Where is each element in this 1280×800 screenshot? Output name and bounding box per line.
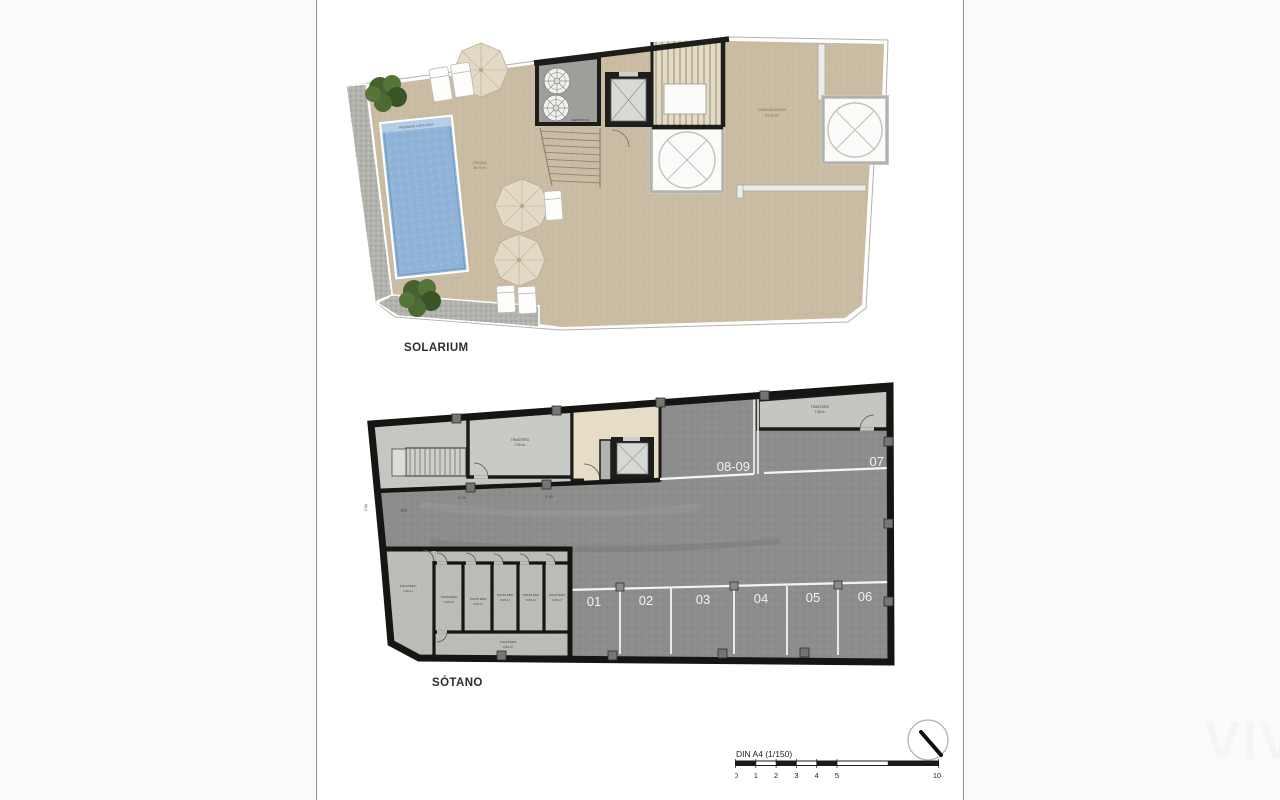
skylight-shaft-right	[823, 97, 887, 163]
svg-text:ZONA ACCESOS: ZONA ACCESOS	[758, 108, 787, 112]
svg-text:TRASTERO: TRASTERO	[497, 593, 514, 597]
parking-spot-07: 07	[870, 454, 884, 469]
elevator-solarium	[605, 72, 652, 127]
svg-text:60.00 m²: 60.00 m²	[474, 166, 487, 170]
elevator-basement	[611, 437, 654, 480]
machine-room-label: DEPÓSITOS	[571, 117, 588, 122]
svg-text:3.39 m²: 3.39 m²	[473, 602, 483, 606]
solarium-floorplan: DEPÓSITOS	[340, 28, 900, 358]
scale-ticks: 0 1 2 3 4 5 10	[735, 771, 941, 780]
svg-text:7.50 m²: 7.50 m²	[515, 443, 526, 447]
svg-text:PISCINA: PISCINA	[473, 161, 487, 165]
svg-text:TRASTERO: TRASTERO	[811, 405, 830, 409]
parking-spot-06: 06	[858, 589, 872, 604]
pool-area-label: PISCINA 60.00 m²	[473, 161, 487, 170]
parasol-icon	[495, 179, 549, 233]
svg-text:3.49 m²: 3.49 m²	[444, 600, 454, 604]
svg-text:TRASTERO: TRASTERO	[511, 438, 530, 442]
parking-spot-04: 04	[754, 591, 768, 606]
swimming-pool: PISCINA DE 1.20 A 2.20 m	[380, 116, 468, 279]
svg-text:3.08 m²: 3.08 m²	[552, 598, 562, 602]
parking-spot-03: 03	[696, 592, 710, 607]
dim-label: 4.90	[545, 494, 554, 499]
svg-text:TRASTERO: TRASTERO	[441, 595, 458, 599]
svg-text:81.00 m²: 81.00 m²	[765, 114, 779, 118]
svg-text:4.50 m²: 4.50 m²	[503, 645, 513, 649]
parking-spot-02: 02	[639, 593, 653, 608]
svg-text:1: 1	[754, 771, 758, 780]
skylight-shaft-left	[651, 128, 723, 192]
scale-title: DIN A4 (1/150)	[736, 749, 792, 759]
drawing-sheet: DEPÓSITOS	[0, 0, 1280, 800]
water-tank-icon	[544, 68, 570, 94]
svg-text:7.36 m²: 7.36 m²	[815, 410, 826, 414]
svg-text:TRASTERO: TRASTERO	[549, 593, 566, 597]
svg-text:2: 2	[774, 771, 778, 780]
sotano-floorplan: TRASTERO 7.50 m² 4.20 4.90 5% 3.00	[360, 375, 905, 680]
svg-text:TRASTERO: TRASTERO	[500, 640, 517, 644]
parking-spot-0809: 08-09	[717, 459, 750, 474]
dim-label: 4.20	[458, 495, 467, 500]
north-orientation-icon	[898, 710, 960, 772]
solarium-title: SOLARIUM	[404, 342, 469, 354]
svg-text:3: 3	[794, 771, 798, 780]
storeroom-750: TRASTERO 7.50 m²	[468, 411, 572, 477]
stairs-basement	[392, 446, 466, 478]
parking-spot-01: 01	[587, 594, 601, 609]
svg-text:5: 5	[835, 771, 839, 780]
svg-text:10: 10	[933, 771, 941, 780]
sheet-right-margin	[963, 0, 1280, 800]
svg-text:7.30 m²: 7.30 m²	[403, 589, 413, 593]
water-tank-icon	[543, 95, 569, 121]
sotano-title: SÓTANO	[432, 677, 483, 689]
svg-text:TRASTERO: TRASTERO	[400, 584, 417, 588]
dim-label: 3.00	[363, 504, 368, 512]
parasol-icon	[493, 234, 545, 286]
storage-block: TRASTERO 7.30 m² TRASTERO 3.49 m² TRASTE…	[383, 549, 570, 658]
svg-text:3.08 m²: 3.08 m²	[500, 598, 510, 602]
sheet-left-margin	[0, 0, 317, 800]
stairs-upper	[652, 38, 723, 127]
watermark: VIV	[1204, 710, 1280, 772]
svg-text:4: 4	[815, 771, 819, 780]
svg-text:TRASTERO: TRASTERO	[523, 593, 540, 597]
svg-text:0: 0	[735, 771, 738, 780]
machine-room: DEPÓSITOS	[537, 57, 599, 124]
svg-text:TRASTERO: TRASTERO	[470, 597, 487, 601]
svg-text:3.08 m²: 3.08 m²	[526, 598, 536, 602]
slope-label: 5%	[401, 508, 407, 513]
parking-spot-05: 05	[806, 590, 820, 605]
